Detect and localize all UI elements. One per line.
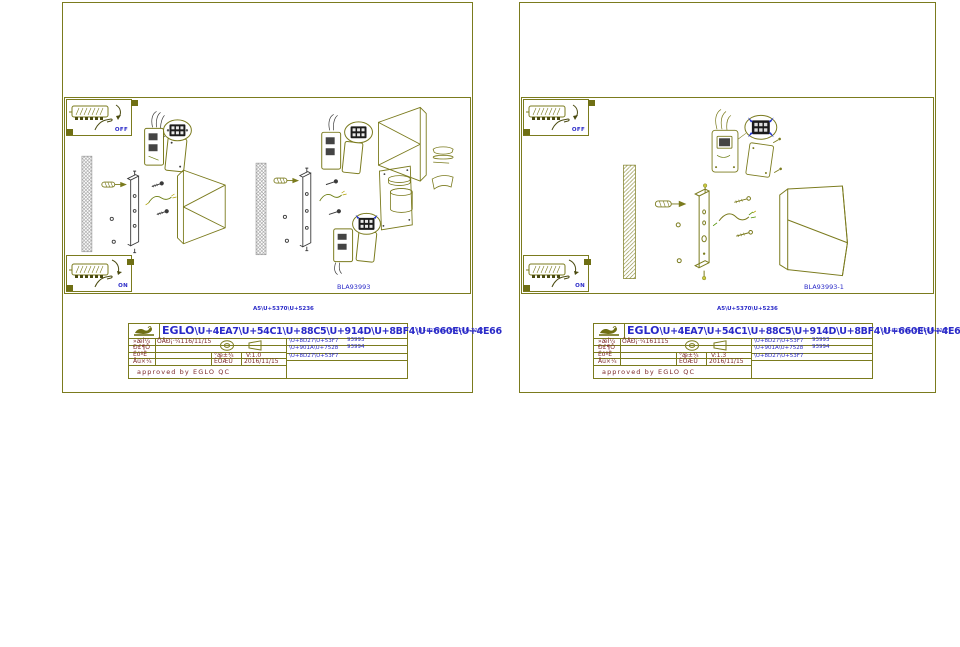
brand-name: EGLO <box>627 324 660 337</box>
print-size-note: A5\U+5370\U+5236 <box>717 306 778 312</box>
breaker-on-icon <box>68 257 124 288</box>
drawn-value: ÕÅÐ¡·¼116/11/15 <box>157 339 211 345</box>
wall-anchor-2 <box>274 178 298 183</box>
breaker-on-icon <box>525 257 581 288</box>
item-no-label-2: \U+8D27\U+53F7 <box>754 354 803 360</box>
drawing-area: OFF ON BLA93993-1 <box>521 97 934 294</box>
wall-hatch-2 <box>256 163 266 255</box>
page: { "colors":{"line_olive":"#7b7b1e","text… <box>0 0 960 647</box>
title-block: EGLO\U+4EA7\U+54C1\U+88C5\U+914D\U+8BF4\… <box>593 323 873 379</box>
item-no-label: \U+8D27\U+53F7 <box>289 339 338 345</box>
drill-holes <box>676 223 681 263</box>
off-label: OFF <box>115 127 128 133</box>
junction-box-3 <box>334 213 381 274</box>
lamp-shade <box>177 170 225 244</box>
mounting-bracket <box>695 184 709 280</box>
screws-2 <box>325 179 340 216</box>
wire-2 <box>320 191 347 201</box>
item-no-label-2: \U+8D27\U+53F7 <box>289 354 338 360</box>
on-label: ON <box>575 283 585 289</box>
corner-mark <box>66 285 73 291</box>
power-off-instruction: OFF <box>523 99 589 136</box>
wall-anchor <box>102 182 126 187</box>
corner-mark <box>588 100 595 106</box>
lamp-shade <box>780 186 848 276</box>
wire <box>713 211 756 226</box>
date-label: ÈÕÆÚ <box>679 359 698 365</box>
on-label: ON <box>118 283 128 289</box>
title-overflow-text: \U+6237\U+5916\U+706F <box>882 329 948 334</box>
item-no-value-2: 93994 <box>347 345 365 351</box>
lamp-cylinder <box>390 189 412 213</box>
date-value: 2016/11/15 <box>709 359 744 365</box>
wall-hatch <box>82 156 92 252</box>
projection-symbol-icon <box>215 339 277 352</box>
junction-box-2 <box>322 114 373 173</box>
projection-symbol-icon <box>680 339 742 352</box>
print-size-note: A5\U+5370\U+5236 <box>253 306 314 312</box>
common-use-label: \U+901A\U+7528 <box>754 346 803 352</box>
common-use-label: \U+901A\U+7528 <box>289 346 338 352</box>
item-no-value-1: 93993 <box>347 338 365 344</box>
drawing-number: BLA93993-1 <box>804 283 844 291</box>
corner-mark <box>131 100 138 106</box>
power-on-instruction: ON <box>523 255 589 292</box>
eglo-logo-icon <box>132 325 158 337</box>
connector-detail <box>745 115 777 139</box>
drawn-value: ÕÅÐ¡·¼161115 <box>622 339 669 345</box>
off-label: OFF <box>572 127 585 133</box>
wire <box>146 194 177 205</box>
approve-label: Åú×¼ <box>598 359 617 365</box>
item-no-value-1: 93993 <box>812 338 830 344</box>
power-on-instruction: ON <box>66 255 132 292</box>
corner-mark <box>584 259 591 265</box>
connector-detail <box>164 120 192 141</box>
corner-mark <box>66 129 73 135</box>
lamp-disc <box>388 176 410 186</box>
corner-mark <box>127 259 134 265</box>
wall-hatch <box>624 165 636 278</box>
wall-anchor <box>655 201 685 207</box>
item-no-value-2: 93994 <box>812 345 830 351</box>
glass-parts <box>432 147 453 189</box>
date-label: ÈÕÆÚ <box>214 359 233 365</box>
brand-name: EGLO <box>162 324 195 337</box>
drawing-area: OFF ON BLA93993 <box>64 97 471 294</box>
corner-mark <box>523 285 530 291</box>
item-no-label: \U+8D27\U+53F7 <box>754 339 803 345</box>
sheet-right: OFF ON BLA93993-1 A5\U+5370\U+5236 <box>519 2 936 393</box>
approved-by-line: approved by EGLO QC <box>602 369 695 376</box>
power-off-instruction: OFF <box>66 99 132 136</box>
approve-label: Åú×¼ <box>133 359 152 365</box>
title-overflow-text: \U+6237\U+5916\U+706F <box>417 329 483 334</box>
title-block: EGLO\U+4EA7\U+54C1\U+88C5\U+914D\U+8BF4\… <box>128 323 408 379</box>
eglo-logo-icon <box>597 325 623 337</box>
sheet-left: OFF ON BLA93993 A5\U+5370\U+5236 <box>62 2 473 393</box>
approved-by-line: approved by EGLO QC <box>137 369 230 376</box>
date-value: 2016/11/15 <box>244 359 279 365</box>
corner-mark <box>523 129 530 135</box>
drawing-number: BLA93993 <box>337 283 370 291</box>
screws <box>151 181 168 216</box>
